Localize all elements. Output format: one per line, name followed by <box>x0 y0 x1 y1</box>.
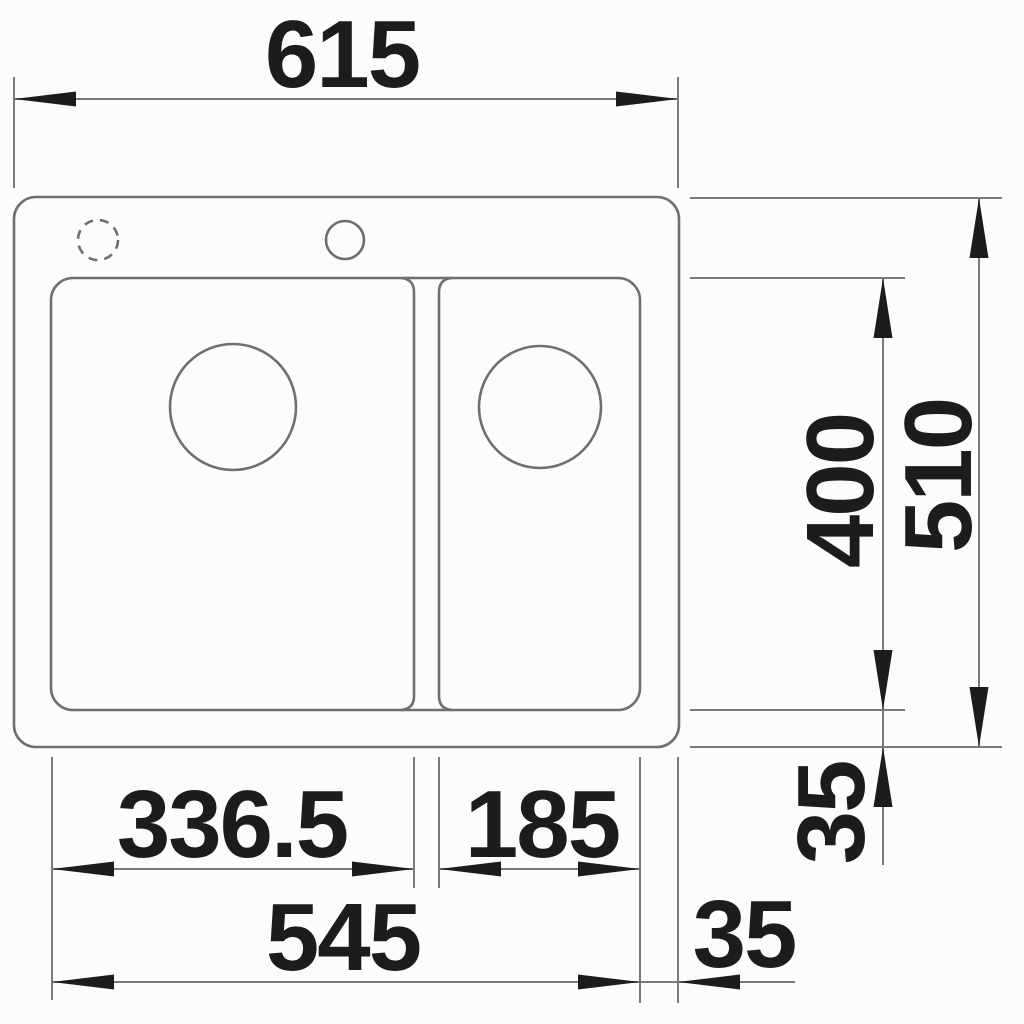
tap-hole <box>326 221 364 259</box>
bowl-divider-left-edge <box>401 278 414 710</box>
arrowhead-up <box>970 198 989 258</box>
dim-top-overall-width: 615 <box>14 1 678 188</box>
dim-label-bowl-depth: 400 <box>787 414 894 568</box>
drain-left-bowl <box>170 344 296 470</box>
dim-bottom-right-offset: 35 <box>678 881 795 990</box>
sink-body <box>14 197 679 747</box>
dim-right-bottom-offset: 35 <box>778 747 893 864</box>
dim-label-right-offset: 35 <box>693 881 796 988</box>
arrowhead-right <box>578 975 640 990</box>
bowl-divider-right-edge <box>439 278 452 710</box>
arrowhead-left <box>52 975 114 990</box>
arrowhead-right <box>616 92 678 107</box>
sink-dimension-drawing: 615 510 400 35 <box>0 0 1024 1024</box>
bowl-opening-outline <box>51 278 640 710</box>
arrowhead-left <box>14 92 76 107</box>
sink-outer-rim <box>14 197 679 747</box>
dim-label-main-bowl-width: 336.5 <box>117 771 347 878</box>
dim-label-bowls-span: 545 <box>266 884 420 991</box>
arrowhead-up <box>874 278 893 338</box>
dim-label-half-bowl-width: 185 <box>465 771 619 878</box>
arrowhead-left <box>52 862 114 877</box>
arrowhead-down <box>874 650 893 710</box>
arrowhead-right <box>352 862 414 877</box>
drain-right-bowl <box>479 346 601 468</box>
dim-half-bowl-width: 185 <box>439 771 640 878</box>
arrowhead-down <box>970 687 989 747</box>
tap-hole-optional-dashed <box>78 220 118 260</box>
dim-label-overall-width: 615 <box>265 1 419 108</box>
dim-main-bowl-width: 336.5 <box>52 771 414 878</box>
sink-drawing-svg: 615 510 400 35 <box>0 0 1024 1024</box>
dim-label-overall-depth: 510 <box>885 399 992 553</box>
dim-bowls-span: 545 <box>52 884 795 991</box>
dim-label-bottom-offset: 35 <box>778 762 885 865</box>
